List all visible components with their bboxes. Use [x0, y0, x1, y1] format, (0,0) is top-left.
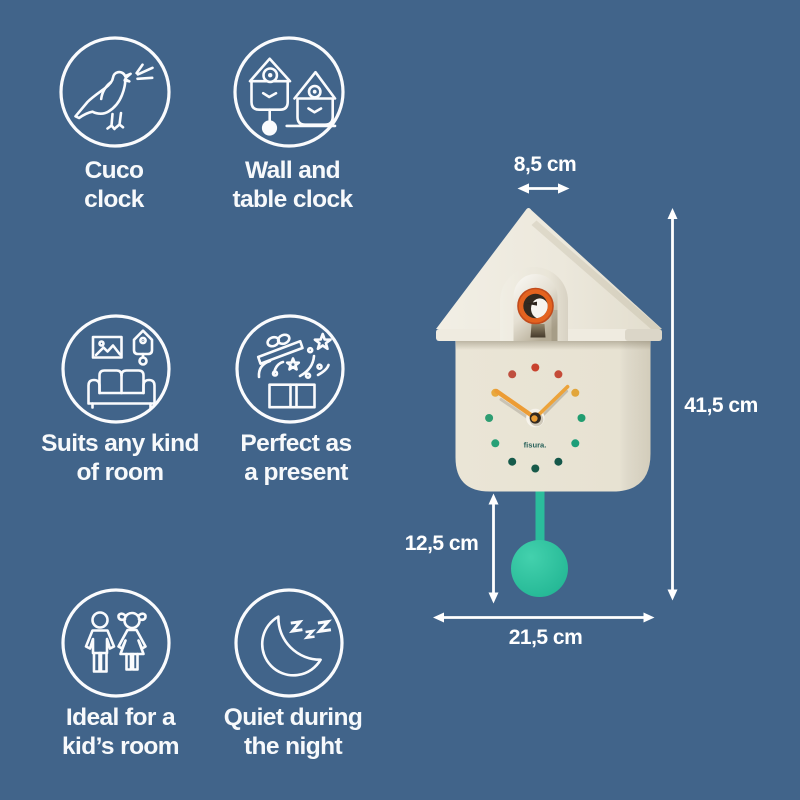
svg-text:fisura.: fisura. — [524, 441, 547, 450]
